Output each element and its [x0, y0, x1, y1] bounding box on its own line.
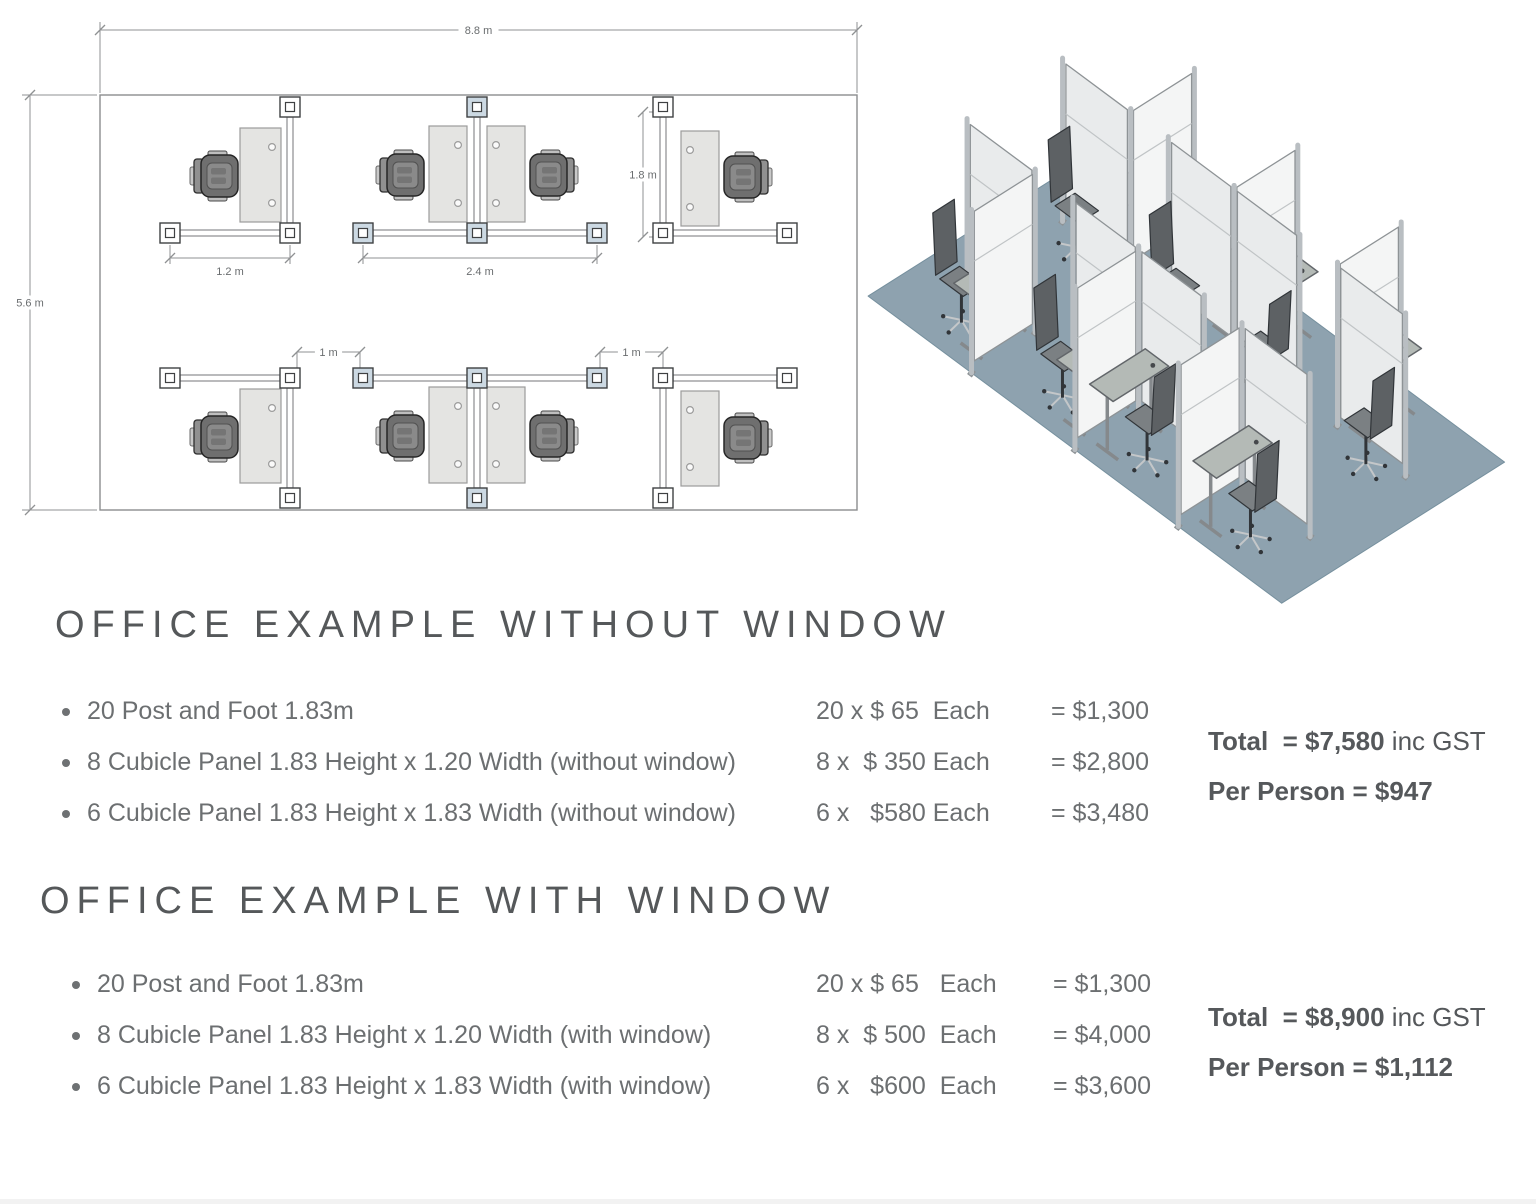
post-and-foot [160, 223, 180, 243]
total-value: Total = $8,900 [1208, 1002, 1385, 1033]
post-and-foot [280, 488, 300, 508]
cubicle-panel [660, 117, 666, 223]
cubicle-panel [180, 375, 280, 381]
post-and-foot [353, 368, 373, 388]
bullet-icon [72, 1032, 80, 1040]
isometric-cubicle-render [840, 40, 1536, 620]
post-and-foot [467, 488, 487, 508]
total-line: Total = $8,900 inc GST [1208, 992, 1486, 1042]
item-qty-price: 8 x $ 500 Each [816, 1021, 997, 1050]
office-chair [190, 151, 238, 201]
post-and-foot [467, 368, 487, 388]
item-description: 6 Cubicle Panel 1.83 Height x 1.83 Width… [97, 1072, 711, 1101]
post-and-foot [777, 223, 797, 243]
item-line-total: = $2,800 [1051, 748, 1149, 777]
total-suffix: inc GST [1385, 726, 1486, 757]
line-item: 20 Post and Foot 1.83m20 x $ 65 Each= $1… [72, 959, 1302, 1010]
post-and-foot [653, 488, 673, 508]
cubicle-panel [287, 117, 293, 223]
item-line-total: = $4,000 [1053, 1021, 1151, 1050]
bullet-icon [72, 981, 80, 989]
section-title-with-window: OFFICE EXAMPLE WITH WINDOW [40, 880, 836, 923]
item-line-total: = $1,300 [1051, 697, 1149, 726]
post-and-foot [160, 368, 180, 388]
desk [429, 126, 467, 222]
bullet-icon [62, 810, 70, 818]
post-and-foot [777, 368, 797, 388]
bullet-icon [72, 1083, 80, 1091]
item-description: 20 Post and Foot 1.83m [97, 970, 364, 999]
page-bottom-edge [0, 1199, 1536, 1204]
post-and-foot [653, 97, 673, 117]
item-line-total: = $1,300 [1053, 970, 1151, 999]
desk [487, 126, 525, 222]
desk [681, 131, 719, 226]
cubicle-panel [287, 388, 293, 488]
dimension-label: 2.4 m [466, 266, 494, 278]
office-chair [190, 412, 238, 462]
dimension [358, 245, 602, 264]
item-qty-price: 6 x $600 Each [816, 1072, 997, 1101]
office-chair [376, 411, 424, 461]
item-list-with-window: 20 Post and Foot 1.83m20 x $ 65 Each= $1… [72, 959, 1302, 1112]
item-qty-price: 6 x $580 Each [816, 799, 990, 828]
dimension-label: 1.8 m [629, 170, 657, 182]
post-and-foot [353, 223, 373, 243]
line-item: 8 Cubicle Panel 1.83 Height x 1.20 Width… [62, 737, 1292, 788]
total-suffix: inc GST [1385, 1002, 1486, 1033]
desk [487, 387, 525, 483]
per-person-line: Per Person = $947 [1208, 766, 1486, 816]
post-and-foot [587, 368, 607, 388]
total-value: Total = $7,580 [1208, 726, 1385, 757]
dimension-label: 5.6 m [16, 298, 44, 310]
post-and-foot [653, 223, 673, 243]
per-person-value: Per Person = $1,112 [1208, 1052, 1453, 1083]
office-chair [724, 413, 772, 463]
cubicle-panel [673, 230, 777, 236]
dimension [165, 245, 295, 264]
office-chair [376, 150, 424, 200]
item-list-without-window: 20 Post and Foot 1.83m20 x $ 65 Each= $1… [62, 686, 1292, 839]
dimension-label: 8.8 m [465, 25, 493, 37]
item-description: 6 Cubicle Panel 1.83 Height x 1.83 Width… [87, 799, 736, 828]
office-chair [724, 152, 772, 202]
post-and-foot [467, 223, 487, 243]
desk [240, 128, 281, 222]
bullet-icon [62, 759, 70, 767]
cubicle-panel [373, 230, 467, 236]
desk [681, 391, 719, 486]
cubicle-panel [660, 388, 666, 488]
line-item: 6 Cubicle Panel 1.83 Height x 1.83 Width… [72, 1061, 1302, 1112]
section-title-without-window: OFFICE EXAMPLE WITHOUT WINDOW [55, 604, 952, 647]
post-and-foot [653, 368, 673, 388]
summary-with-window: Total = $8,900 inc GST Per Person = $1,1… [1208, 992, 1486, 1092]
cubicle-panel [487, 230, 587, 236]
post-and-foot [280, 368, 300, 388]
item-qty-price: 20 x $ 65 Each [816, 697, 990, 726]
cubicle-panel [673, 375, 777, 381]
cubicle-panel [180, 230, 280, 236]
line-item: 8 Cubicle Panel 1.83 Height x 1.20 Width… [72, 1010, 1302, 1061]
item-qty-price: 8 x $ 350 Each [816, 748, 990, 777]
per-person-line: Per Person = $1,112 [1208, 1042, 1486, 1092]
post-and-foot [280, 97, 300, 117]
item-description: 20 Post and Foot 1.83m [87, 697, 354, 726]
item-qty-price: 20 x $ 65 Each [816, 970, 997, 999]
post-and-foot [467, 97, 487, 117]
item-description: 8 Cubicle Panel 1.83 Height x 1.20 Width… [87, 748, 736, 777]
desk [240, 389, 281, 483]
item-line-total: = $3,480 [1051, 799, 1149, 828]
office-chair [530, 411, 578, 461]
bullet-icon [62, 708, 70, 716]
dimension-label: 1.2 m [216, 266, 244, 278]
cubicle-panel [373, 375, 467, 381]
dimension-label: 1 m [622, 347, 640, 359]
cubicle-panel [474, 388, 480, 488]
line-item: 20 Post and Foot 1.83m20 x $ 65 Each= $1… [62, 686, 1292, 737]
cubicle-panel [474, 117, 480, 223]
floor-plan-diagram: 8.8 m5.6 m1.2 m2.4 m1.8 m1 m1 m [0, 0, 880, 560]
item-description: 8 Cubicle Panel 1.83 Height x 1.20 Width… [97, 1021, 711, 1050]
summary-without-window: Total = $7,580 inc GST Per Person = $947 [1208, 716, 1486, 816]
dimension-label: 1 m [319, 347, 337, 359]
line-item: 6 Cubicle Panel 1.83 Height x 1.83 Width… [62, 788, 1292, 839]
cubicle-panel [487, 375, 587, 381]
post-and-foot [280, 223, 300, 243]
item-line-total: = $3,600 [1053, 1072, 1151, 1101]
desk [429, 387, 467, 483]
per-person-value: Per Person = $947 [1208, 776, 1433, 807]
total-line: Total = $7,580 inc GST [1208, 716, 1486, 766]
post-and-foot [587, 223, 607, 243]
office-chair [530, 150, 578, 200]
